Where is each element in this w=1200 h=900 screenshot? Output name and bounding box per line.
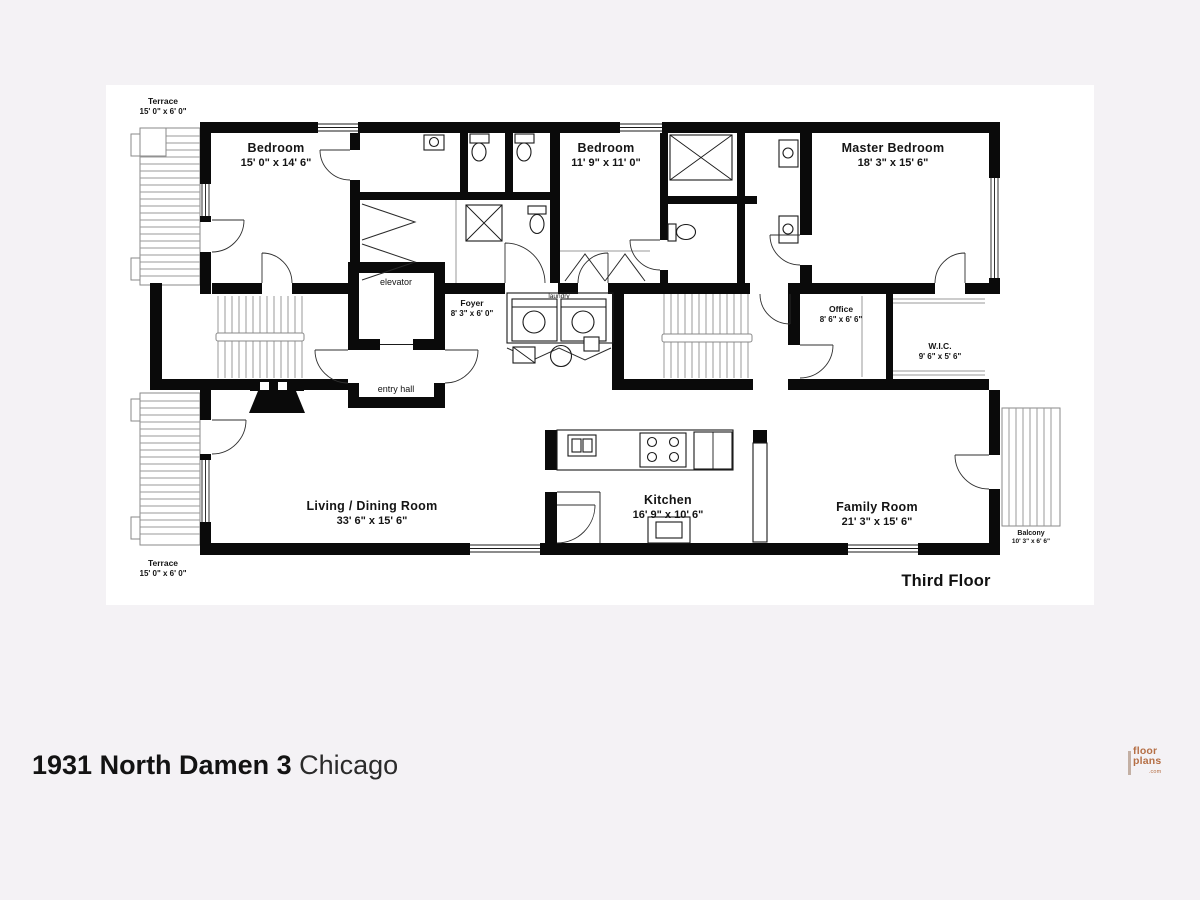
room-label-laundry: laundry <box>548 293 569 301</box>
room-label-terrace-bottom: Terrace15' 0" x 6' 0" <box>140 558 187 579</box>
listing-address: 1931 North Damen 3 Chicago <box>32 750 398 781</box>
room-label-wic: W.I.C.9' 6" x 5' 6" <box>919 341 962 362</box>
room-label-office: Office8' 6" x 6' 6" <box>820 304 863 325</box>
room-label-foyer: Foyer8' 3" x 6' 0" <box>451 298 494 319</box>
room-label-balcony: Balcony10' 3" x 6' 6" <box>1012 529 1050 547</box>
logo-word-2: plans <box>1133 756 1161 766</box>
wic-shelves <box>862 296 985 377</box>
address-text: 1931 North Damen 3 <box>32 750 292 780</box>
room-label-elevator: elevator <box>380 277 412 289</box>
staircase-left <box>216 296 304 378</box>
floor-title: Third Floor <box>901 572 990 591</box>
terrace-bottom-deck <box>131 393 200 545</box>
balcony-deck <box>1002 408 1060 526</box>
city-text: Chicago <box>299 750 398 780</box>
floorplan-page: { "colors": { "wall": "#0a0a0a", "line-g… <box>0 0 1200 900</box>
logo-suffix: .com <box>1149 767 1162 777</box>
room-label-family-room: Family Room21' 3" x 15' 6" <box>836 499 918 530</box>
room-label-bedroom-left: Bedroom15' 0" x 14' 6" <box>241 140 312 171</box>
room-label-master-bedroom: Master Bedroom18' 3" x 15' 6" <box>842 140 945 171</box>
floorplans-logo: floor plans .com <box>1128 746 1178 788</box>
door-arcs <box>212 150 989 543</box>
staircase-right <box>662 294 752 378</box>
room-label-entry-hall: entry hall <box>378 384 415 396</box>
room-label-bedroom-mid: Bedroom11' 9" x 11' 0" <box>571 140 641 171</box>
terrace-top-deck <box>131 128 200 285</box>
fireplace <box>249 379 305 413</box>
room-label-living-dining: Living / Dining Room33' 6" x 15' 6" <box>307 498 438 529</box>
elevator-shaft <box>348 262 445 350</box>
laundry-closet <box>507 293 613 367</box>
logo-bar <box>1128 751 1131 775</box>
room-label-terrace-top: Terrace15' 0" x 6' 0" <box>140 96 187 117</box>
room-label-kitchen: Kitchen16' 9" x 10' 6" <box>633 492 704 523</box>
